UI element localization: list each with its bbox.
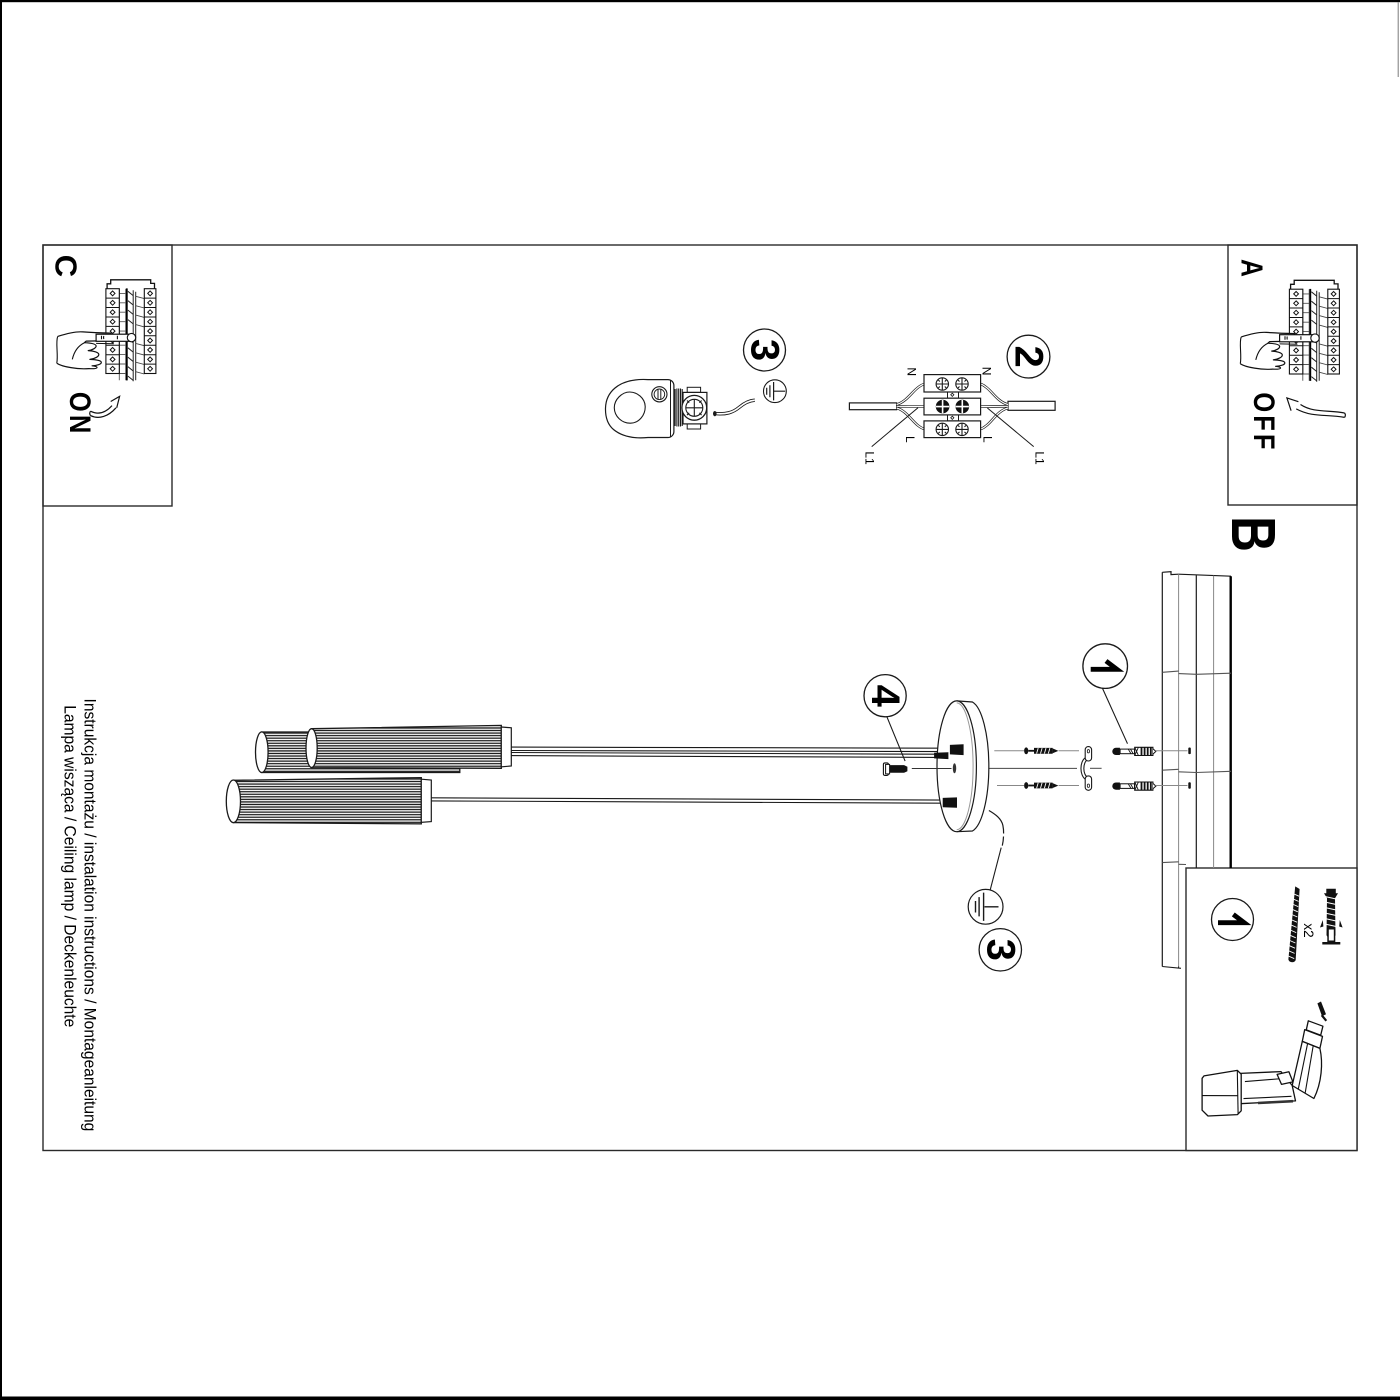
svg-text:L1: L1 bbox=[1033, 451, 1047, 465]
svg-text:3: 3 bbox=[978, 939, 1022, 961]
svg-text:B: B bbox=[1219, 516, 1289, 552]
svg-text:L: L bbox=[980, 436, 994, 443]
svg-text:N: N bbox=[905, 367, 919, 376]
svg-text:C: C bbox=[49, 255, 84, 277]
svg-text:OFF: OFF bbox=[1247, 392, 1280, 449]
svg-text:N: N bbox=[980, 367, 994, 376]
svg-text:Instrukcja montażu / instalati: Instrukcja montażu / instalation instruc… bbox=[81, 699, 99, 1132]
svg-text:Lampa wisząca / Ceiling lamp /: Lampa wisząca / Ceiling lamp / Deckenleu… bbox=[61, 705, 79, 1027]
svg-text:L1: L1 bbox=[863, 451, 877, 465]
svg-text:4: 4 bbox=[863, 685, 907, 708]
svg-text:L: L bbox=[903, 436, 917, 443]
svg-text:A: A bbox=[1235, 259, 1269, 277]
svg-text:x2: x2 bbox=[1301, 923, 1316, 937]
svg-text:2: 2 bbox=[1007, 345, 1051, 367]
svg-text:3: 3 bbox=[743, 339, 787, 361]
